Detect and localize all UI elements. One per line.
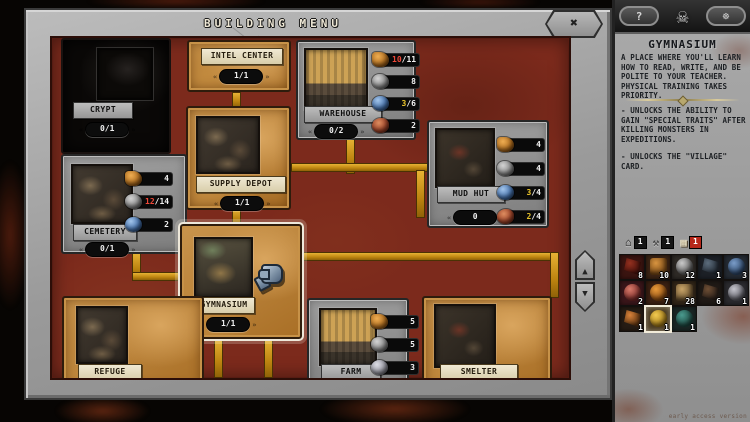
counter-value: 1/1	[219, 69, 263, 84]
counter-value: 1/1	[220, 196, 264, 211]
item-count: 10	[659, 271, 669, 280]
counter-chevron-right: »	[265, 73, 269, 81]
building-card-farm[interactable]: FARM553	[307, 298, 409, 380]
counter-chevron-left: «	[447, 214, 451, 222]
item-count: 1	[638, 323, 643, 332]
cards-tab-icon: ▦	[680, 236, 687, 249]
tree-connector	[416, 170, 425, 218]
building-card-mud-hut[interactable]: MUD HUT«0»443/42/4	[427, 120, 549, 228]
tab-count: 1	[634, 236, 647, 249]
inventory-item-silver-orb[interactable]: 1	[723, 280, 749, 306]
building-card-smelter[interactable]: SMELTER	[422, 296, 552, 380]
soul-resource-icon	[372, 96, 389, 111]
item-count: 6	[716, 297, 721, 306]
inventory-item-scythe[interactable]: 8	[619, 254, 645, 280]
resource-tabs: ⌂1⚒1▦1	[625, 236, 702, 249]
item-count: 1	[716, 271, 721, 280]
inventory-item-soul-orb[interactable]: 3	[723, 254, 749, 280]
inventory-item-stone[interactable]: 12	[671, 254, 697, 280]
resource-cost-row: 4	[125, 171, 173, 186]
item-count: 2	[638, 297, 643, 306]
building-label: SUPPLY DEPOT	[196, 176, 286, 193]
resource-cost-row: 2	[125, 217, 173, 232]
inventory-item-crate[interactable]: 28	[671, 280, 697, 306]
resource-cost-row: 2	[372, 118, 420, 133]
item-count: 1	[664, 323, 669, 332]
silver-resource-icon	[371, 360, 388, 375]
inventory-grid: 8101213272861111	[619, 254, 749, 332]
counter-chevron-left: «	[308, 128, 312, 136]
item-count: 12	[685, 271, 695, 280]
wood-resource-icon	[371, 314, 388, 329]
counter-value: 0/2	[314, 124, 358, 139]
building-card-warehouse[interactable]: WAREHOUSE«0/2»10/1183/62	[296, 40, 416, 140]
counter-value: 1/1	[206, 317, 250, 332]
resource-cost-row: 2/4	[497, 209, 545, 224]
build-counter: «1/1»	[200, 317, 256, 332]
wood-resource-icon	[497, 137, 514, 152]
wood-resource-icon	[372, 52, 389, 67]
chevron-up-icon: ▲	[577, 252, 593, 278]
tree-connector	[264, 338, 273, 378]
soul-resource-icon	[125, 217, 142, 232]
item-count: 3	[742, 271, 747, 280]
building-description: A PLACE WHERE YOU'LL LEARN HOW TO READ, …	[621, 53, 746, 101]
tree-connector	[291, 163, 436, 172]
counter-chevron-right: »	[131, 126, 135, 134]
counter-value: 0/1	[85, 242, 129, 257]
tree-connector	[132, 272, 182, 281]
building-card-crypt[interactable]: CRYPT«0/1»	[61, 38, 171, 154]
meat-resource-icon	[497, 209, 514, 224]
counter-value: 0/1	[85, 122, 129, 137]
building-label: WAREHOUSE	[304, 106, 382, 123]
building-art-crypt	[97, 48, 153, 100]
build-counter: «0/1»	[79, 122, 135, 137]
building-art-refuge	[76, 306, 128, 364]
building-effect: - UNLOCKS THE "VILLAGE" CARD.	[621, 152, 746, 171]
counter-chevron-left: «	[213, 73, 217, 81]
resource-cost-row: 5	[371, 314, 419, 329]
inventory-item-horn[interactable]: 6	[697, 280, 723, 306]
building-effect: - UNLOCKS THE ABILITY TO GAIN "SPECIAL T…	[621, 106, 746, 144]
tree-connector	[301, 252, 559, 261]
settings-button[interactable]: ☸	[706, 6, 746, 26]
chevron-down-icon: ▼	[577, 284, 593, 310]
resource-cost-row: 4	[497, 137, 545, 152]
counter-chevron-left: «	[79, 126, 83, 134]
counter-chevron-right: »	[131, 246, 135, 254]
tab-buildings[interactable]: ⌂1	[625, 236, 647, 249]
inventory-item-hook[interactable]: 1	[697, 254, 723, 280]
resource-cost-row: 3/6	[372, 96, 420, 111]
inventory-item-teal-shell[interactable]: 1	[671, 306, 697, 332]
close-button[interactable]: ✖	[545, 10, 603, 38]
tab-count: 1	[661, 236, 674, 249]
screen: BUILDING MENU ✖ CRYPT«0/1»INTEL CENTER«1…	[0, 0, 750, 422]
build-counter: «0/1»	[79, 242, 135, 257]
tab-count: 1	[689, 236, 702, 249]
info-sidebar: ? ☠ ☸ GYMNASIUM A PLACE WHERE YOU'LL LEA…	[612, 0, 750, 422]
close-icon: ✖	[570, 16, 578, 31]
scroll-up-button[interactable]: ▲	[575, 250, 595, 280]
skull-icon: ☠	[676, 6, 688, 26]
counter-value: 0	[453, 210, 497, 225]
item-count: 7	[664, 297, 669, 306]
building-label: MUD HUT	[437, 186, 505, 203]
inventory-item-golden-egg[interactable]: 1	[645, 306, 671, 332]
inventory-item-hatchet[interactable]: 1	[619, 306, 645, 332]
meat-resource-icon	[372, 118, 389, 133]
building-label: SMELTER	[440, 364, 518, 380]
resource-cost-row: 3	[371, 360, 419, 375]
inventory-item-meat[interactable]: 2	[619, 280, 645, 306]
resource-cost-row: 4	[497, 161, 545, 176]
resource-cost-row: 3/4	[497, 185, 545, 200]
building-art-supply-depot	[196, 116, 260, 174]
stone-resource-icon	[371, 337, 388, 352]
divider	[625, 99, 740, 101]
building-label: CRYPT	[73, 102, 133, 119]
counter-chevron-right: »	[252, 321, 256, 329]
stone-resource-icon	[497, 161, 514, 176]
panel-title: BUILDING MENU	[26, 17, 520, 30]
building-menu-panel: BUILDING MENU ✖ CRYPT«0/1»INTEL CENTER«1…	[24, 8, 612, 400]
gear-icon: ☸	[723, 10, 730, 23]
resource-cost-row: 12/14	[125, 194, 173, 209]
building-art-mud-hut	[435, 128, 495, 188]
counter-chevron-right: »	[266, 200, 270, 208]
building-card-supply-depot[interactable]: SUPPLY DEPOT«1/1»	[186, 106, 291, 210]
build-counter: «0/2»	[308, 124, 364, 139]
build-counter: «1/1»	[213, 69, 269, 84]
resource-cost-row: 8	[372, 74, 420, 89]
building-art-warehouse	[304, 48, 368, 110]
sidebar-header: ? ☠ ☸	[615, 0, 750, 34]
tech-tree-board: CRYPT«0/1»INTEL CENTER«1/1»WAREHOUSE«0/2…	[50, 36, 571, 380]
item-count: 1	[742, 297, 747, 306]
watermark-text: early access version	[669, 413, 747, 420]
inventory-item-amber-orb[interactable]: 7	[645, 280, 671, 306]
building-art-smelter	[434, 304, 496, 368]
inventory-item-planks[interactable]: 10	[645, 254, 671, 280]
tab-tools[interactable]: ⚒1	[653, 236, 675, 249]
build-counter: «0»	[447, 210, 503, 225]
building-art-cemetery	[71, 164, 133, 224]
building-art-gymnasium	[194, 237, 253, 298]
scroll-down-button[interactable]: ▼	[575, 282, 595, 312]
counter-chevron-left: «	[214, 200, 218, 208]
item-count: 8	[638, 271, 643, 280]
soul-resource-icon	[497, 185, 514, 200]
building-label: INTEL CENTER	[201, 48, 283, 65]
building-art-farm	[319, 308, 377, 366]
building-card-refuge[interactable]: REFUGE	[62, 296, 204, 380]
building-card-intel-center[interactable]: INTEL CENTER«1/1»	[187, 40, 291, 92]
tab-cards[interactable]: ▦1	[680, 236, 702, 249]
building-label: REFUGE	[78, 364, 142, 380]
buildings-tab-icon: ⌂	[625, 236, 632, 249]
tree-connector	[214, 338, 223, 378]
item-count: 28	[685, 297, 695, 306]
counter-chevron-left: «	[79, 246, 83, 254]
tree-connector	[550, 252, 559, 298]
counter-chevron-right: »	[360, 128, 364, 136]
resource-cost-row: 5	[371, 337, 419, 352]
item-count: 1	[690, 323, 695, 332]
resource-cost-row: 10/11	[372, 52, 420, 67]
building-card-cemetery[interactable]: CEMETERY«0/1»412/142	[61, 154, 187, 254]
cursor-glove-icon	[256, 263, 284, 288]
wood-resource-icon	[125, 171, 142, 186]
help-icon: ?	[636, 10, 643, 23]
build-counter: «1/1»	[214, 196, 270, 211]
help-button[interactable]: ?	[619, 6, 659, 26]
stone-resource-icon	[125, 194, 142, 209]
tools-tab-icon: ⚒	[653, 236, 660, 249]
stone-resource-icon	[372, 74, 389, 89]
building-title: GYMNASIUM	[615, 38, 750, 51]
